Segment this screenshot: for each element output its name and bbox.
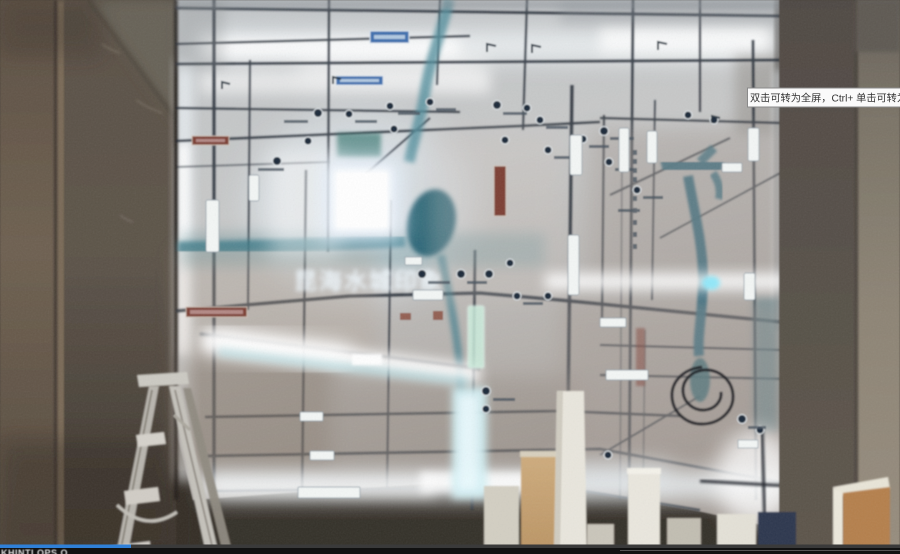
svg-text:双击可转为全屏，Ctrl+ 单击可转为: 双击可转为全屏，Ctrl+ 单击可转为 [750,92,900,105]
svg-text:KHINTI OPS O: KHINTI OPS O [1,548,68,554]
